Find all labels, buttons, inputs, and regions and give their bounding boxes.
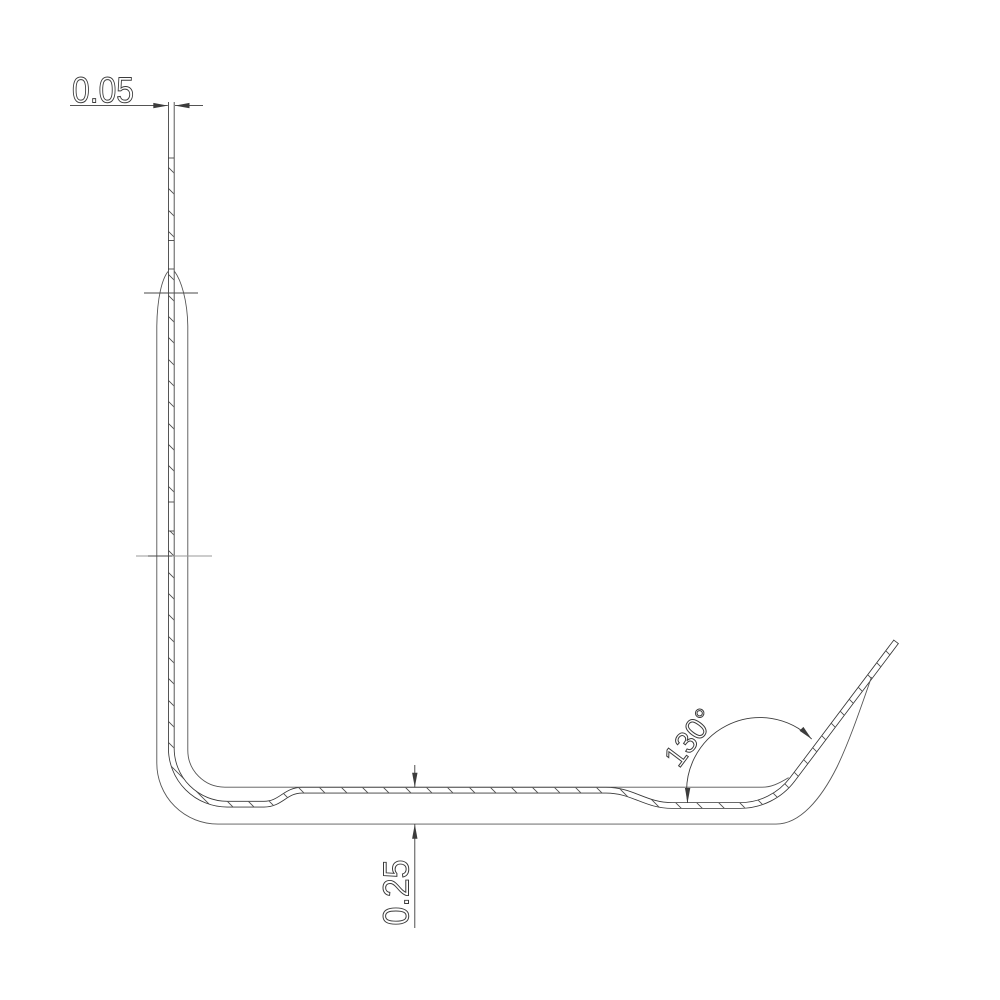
svg-text:0.05: 0.05	[72, 70, 134, 111]
svg-text:0.25: 0.25	[376, 860, 417, 926]
svg-text:130°: 130°	[657, 702, 722, 773]
